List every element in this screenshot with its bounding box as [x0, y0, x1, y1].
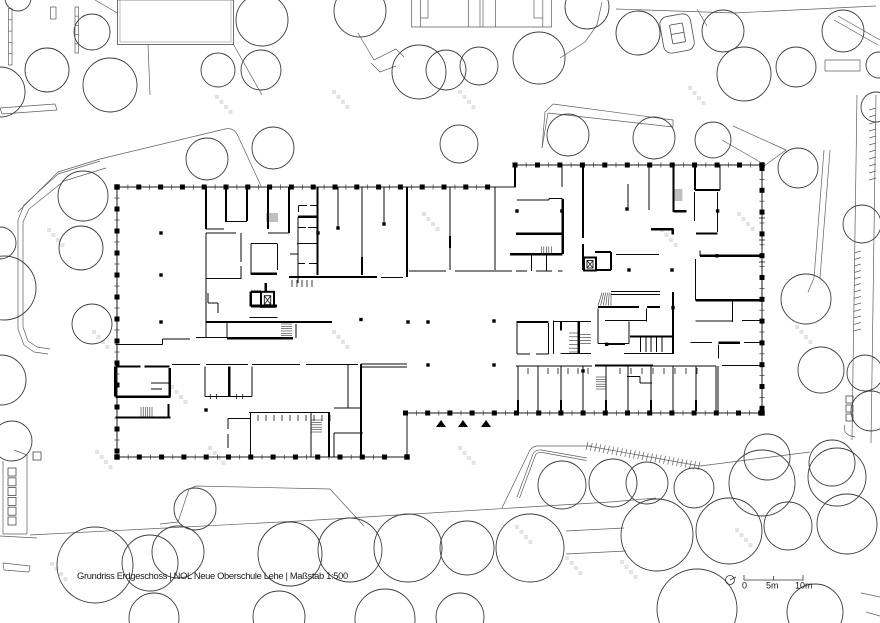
svg-text:10m: 10m — [795, 581, 813, 591]
svg-text:Grundriss Erdgeschoss | NOL Ne: Grundriss Erdgeschoss | NOL Neue Obersch… — [77, 570, 348, 581]
svg-text:0: 0 — [742, 581, 747, 591]
svg-text:5m: 5m — [766, 581, 779, 591]
